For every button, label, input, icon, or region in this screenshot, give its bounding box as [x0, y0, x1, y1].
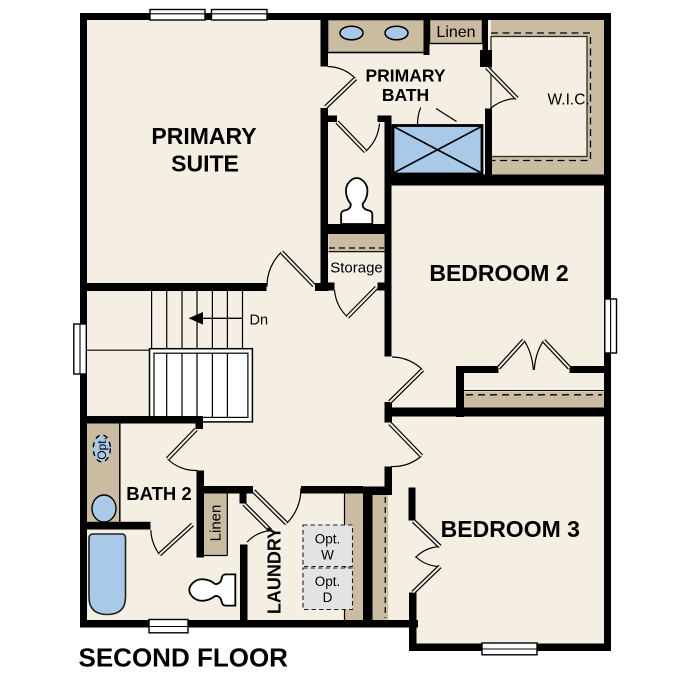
svg-text:Linen: Linen	[208, 505, 225, 542]
svg-text:Storage: Storage	[330, 260, 383, 277]
svg-text:BEDROOM 3: BEDROOM 3	[441, 516, 580, 542]
svg-text:Opt.: Opt.	[315, 532, 341, 547]
svg-text:LAUNDRY: LAUNDRY	[265, 527, 285, 614]
svg-text:W: W	[321, 548, 334, 563]
svg-text:PRIMARY: PRIMARY	[365, 66, 445, 86]
svg-text:BEDROOM 2: BEDROOM 2	[429, 260, 568, 286]
svg-text:SECOND FLOOR: SECOND FLOOR	[79, 643, 289, 673]
svg-text:PRIMARY: PRIMARY	[151, 123, 256, 149]
svg-text:BATH 2: BATH 2	[126, 483, 191, 504]
svg-text:D: D	[323, 590, 333, 605]
svg-text:BATH: BATH	[382, 85, 429, 105]
svg-text:SUITE: SUITE	[171, 151, 239, 177]
svg-text:Linen: Linen	[436, 24, 475, 41]
svg-text:W.I.C.: W.I.C.	[548, 92, 590, 109]
svg-text:Opt.: Opt.	[315, 574, 341, 589]
svg-text:Opt.: Opt.	[95, 437, 109, 460]
svg-text:Dn: Dn	[250, 313, 269, 329]
